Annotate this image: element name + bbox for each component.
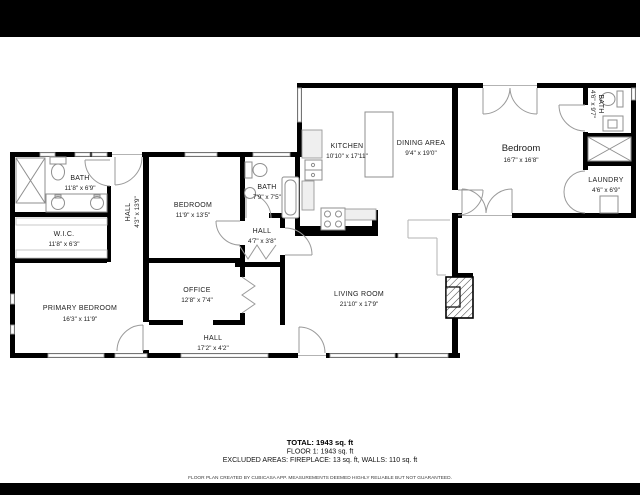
- washer-icon: [600, 196, 618, 213]
- room-dims-hall-horizontal: 17'2" x 4'2": [197, 345, 229, 352]
- room-boundary-line: [408, 220, 450, 275]
- floor-plan-drawing: BATH 11'8" x 6'9" W.I.C. 11'8" x 6'3" HA…: [0, 0, 640, 495]
- room-dims-bedroom-right: 16'7" x 16'8": [503, 157, 538, 164]
- room-label-hall-horizontal: HALL: [204, 335, 223, 342]
- room-dims-bath-right: 4'6" x 9'7": [589, 90, 596, 118]
- room-label-bedroom-right: Bedroom: [502, 143, 541, 154]
- room-label-kitchen: KITCHEN: [331, 143, 364, 150]
- room-dims-hall-small: 4'7" x 3'8": [248, 238, 276, 245]
- summary-excluded: EXCLUDED AREAS: FIREPLACE: 13 sq. ft, WA…: [223, 457, 418, 464]
- shower-icon: [16, 158, 45, 203]
- shower-icon: [588, 137, 631, 161]
- kitchen-counter-right: [345, 209, 376, 220]
- room-label-bedroom-middle: BEDROOM: [174, 202, 212, 209]
- room-label-dining-area: DINING AREA: [397, 140, 445, 147]
- fireplace: [446, 277, 473, 318]
- room-label-wic: W.I.C.: [54, 231, 75, 238]
- summary-total: TOTAL: 1943 sq. ft: [287, 438, 354, 447]
- summary-block: TOTAL: 1943 sq. ft FLOOR 1: 1943 sq. ft …: [188, 438, 452, 481]
- top-letterbox-bar: [0, 0, 640, 37]
- room-label-bath-right: BATH: [597, 94, 604, 113]
- bottom-letterbox-bar: [0, 483, 640, 495]
- room-label-hall-small: HALL: [253, 228, 272, 235]
- room-dims-wic: 11'8" x 6'3": [48, 241, 79, 248]
- room-label-primary-bedroom: PRIMARY BEDROOM: [43, 305, 117, 312]
- room-label-bath-left: BATH: [70, 175, 89, 182]
- kitchen-counter: [302, 130, 322, 210]
- toilet-icon: [245, 162, 267, 178]
- room-dims-bath-left: 11'8" x 6'9": [64, 185, 95, 192]
- room-dims-bedroom-middle: 11'9" x 13'5": [176, 212, 211, 219]
- room-dims-dining-area: 9'4" x 19'0": [405, 150, 437, 157]
- room-label-office: OFFICE: [183, 287, 210, 294]
- closet-shelves: [16, 218, 107, 258]
- double-vanity-icon: [46, 194, 107, 212]
- toilet-icon: [50, 157, 66, 180]
- room-label-living-room: LIVING ROOM: [334, 291, 384, 298]
- stove-icon: [321, 208, 345, 230]
- room-dims-hall-vertical: 4'3" x 13'9": [134, 196, 141, 228]
- room-dims-living-room: 21'10" x 17'9": [340, 301, 379, 308]
- room-label-laundry: LAUNDRY: [588, 177, 623, 184]
- bathtub-icon: [282, 177, 299, 218]
- room-label-bath-small: BATH: [257, 184, 276, 191]
- kitchen-island: [365, 112, 393, 177]
- summary-floor: FLOOR 1: 1943 sq. ft: [287, 449, 354, 456]
- summary-disclaimer: FLOOR PLAN CREATED BY CUBICASA APP. MEAS…: [188, 475, 452, 481]
- vanity-icon: [603, 116, 623, 131]
- floor-plan-page: BATH 11'8" x 6'9" W.I.C. 11'8" x 6'3" HA…: [0, 0, 640, 495]
- room-dims-kitchen: 10'10" x 17'11": [326, 153, 368, 160]
- room-dims-bath-small: 7'9" x 7'5": [253, 194, 281, 201]
- room-dims-laundry: 4'6" x 6'9": [592, 187, 620, 194]
- room-label-hall-vertical: HALL: [125, 203, 132, 222]
- room-dims-office: 12'8" x 7'4": [181, 297, 213, 304]
- room-dims-primary-bedroom: 16'3" x 11'9": [63, 316, 98, 323]
